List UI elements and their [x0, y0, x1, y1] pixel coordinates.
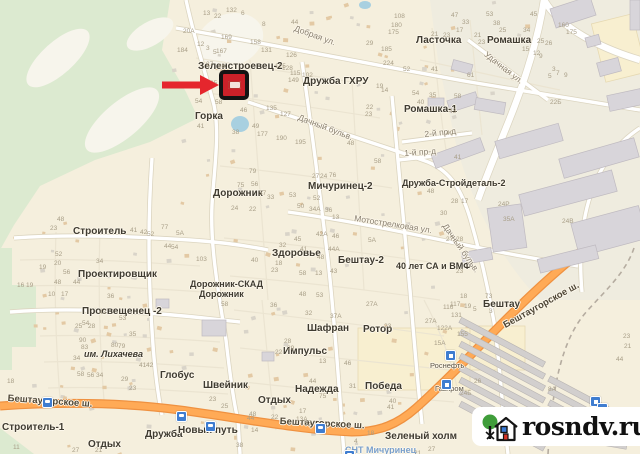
- rosndv-watermark: rosndv.ru: [472, 407, 640, 446]
- watermark-text: rosndv.ru: [522, 412, 640, 441]
- rosndv-logo-icon: [482, 412, 518, 442]
- annotation-layer: [0, 0, 640, 454]
- map-canvas[interactable]: Зеленстроевец-2Дружба ГХРУГоркаЛасточкаР…: [0, 0, 640, 454]
- pointer-arrow-icon: [162, 75, 219, 95]
- listing-location-marker: [219, 70, 249, 100]
- marker-logo-icon: [228, 81, 241, 89]
